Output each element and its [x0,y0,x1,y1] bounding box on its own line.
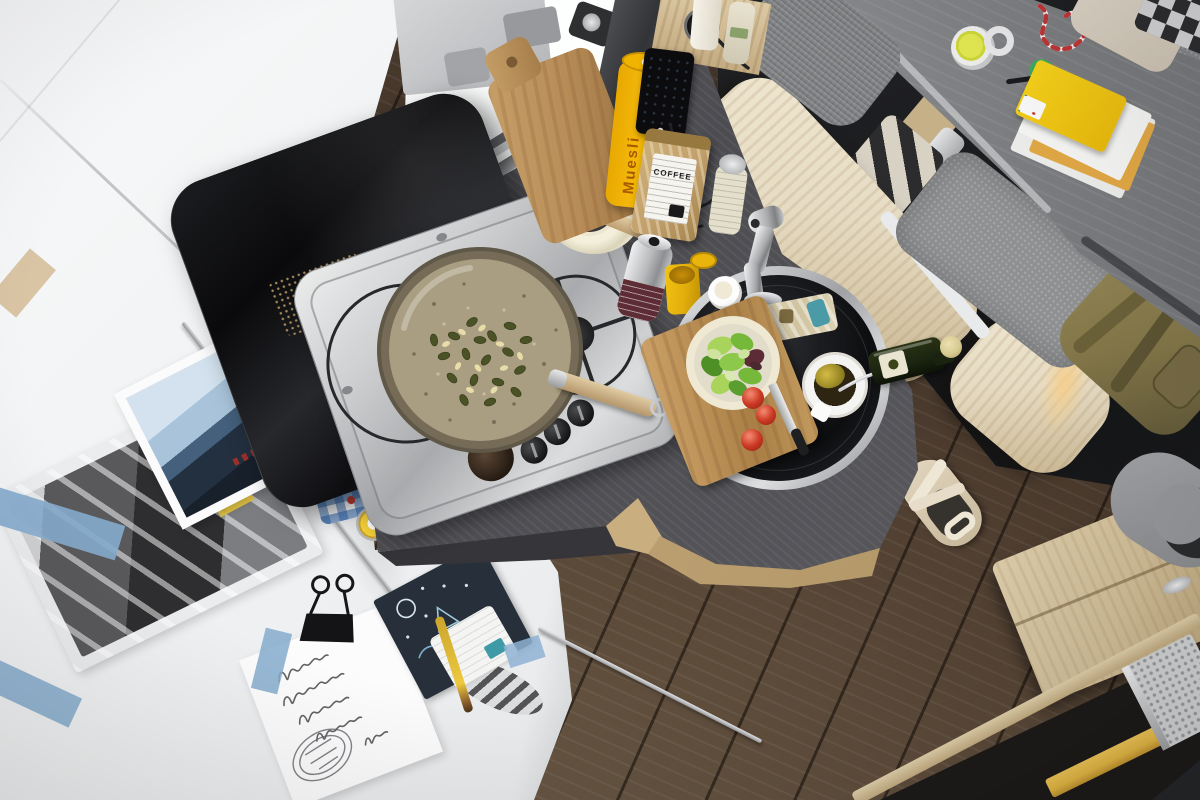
cherry-tomato-2 [756,405,776,425]
towel-red-dot-3 [346,495,356,505]
shaker-label-line [729,27,748,39]
coffee-label: COFFEE [643,153,697,225]
camper-kitchen-photo: Muesli COFFEE [0,0,1200,800]
cherry-tomato-3 [741,429,763,451]
drawer-handle [1160,573,1193,597]
salt-shaker [690,0,723,51]
blind-pull-tab-2 [443,47,490,88]
latch-chrome-knob [580,11,603,34]
snack-teal-print [806,298,831,328]
frying-pan [374,244,586,456]
wood-sliver [0,248,56,317]
binder-clip [294,567,368,653]
label-olive-graphic [887,358,899,370]
mustard-surface [668,265,695,285]
notebook-sticker [1017,94,1046,120]
mustard-lid-open [690,252,717,269]
salad-bowl [684,314,782,412]
coffee-label-text: COFFEE [650,167,695,183]
coffee-label-mug-sketch [668,204,685,218]
backpack-pocket [1148,340,1200,414]
oil-bottle-cap [940,336,962,358]
corner-seam [0,0,121,142]
